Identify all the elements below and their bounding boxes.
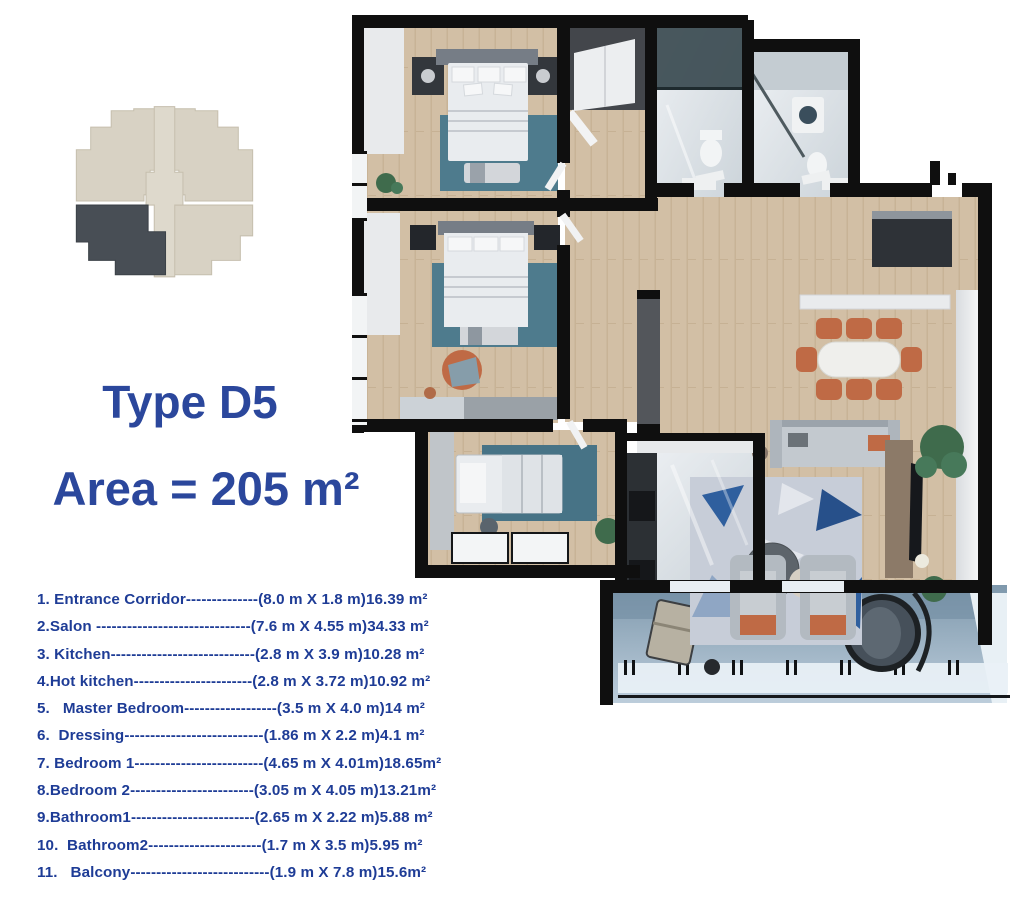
balcony-glass-door bbox=[670, 581, 730, 592]
room-list-item: 10. Bathroom2----------------------(1.7 … bbox=[37, 832, 457, 859]
toilet bbox=[700, 139, 722, 167]
entry-door-jamb bbox=[948, 173, 956, 185]
shower-tray bbox=[750, 48, 848, 90]
window bbox=[352, 151, 367, 221]
kitchen-counter bbox=[637, 441, 753, 453]
corridor-floor bbox=[565, 290, 637, 422]
bed-headboard bbox=[436, 49, 538, 65]
window bbox=[352, 293, 367, 425]
flower bbox=[915, 554, 929, 568]
keyplan-quadrant-bottom-right bbox=[171, 205, 253, 275]
room-list-item: 11. Balcony---------------------------(1… bbox=[37, 859, 457, 886]
dresser-marble bbox=[400, 397, 464, 420]
key-plan bbox=[62, 80, 267, 285]
wardrobe bbox=[430, 432, 454, 550]
dresser bbox=[464, 397, 558, 420]
pillow bbox=[460, 463, 486, 503]
page: { "header": { "type_label": "Type D5", "… bbox=[0, 0, 1024, 900]
console-cabinet bbox=[872, 211, 952, 267]
bed-headboard bbox=[438, 221, 534, 235]
plan-type-title: Type D5 bbox=[60, 378, 320, 426]
shower-glass bbox=[655, 20, 743, 90]
balcony-side-table bbox=[704, 659, 720, 675]
pillows bbox=[448, 237, 524, 251]
keyplan-highlighted-unit bbox=[76, 205, 165, 275]
tv-console bbox=[885, 440, 913, 578]
room-list-item: 6. Dressing---------------------------(1… bbox=[37, 722, 457, 749]
salon-partition-wall bbox=[637, 299, 660, 424]
room-list-item: 8.Bedroom 2------------------------(3.05… bbox=[37, 777, 457, 804]
entry-door-jamb bbox=[930, 161, 940, 185]
sofa bbox=[770, 420, 900, 468]
balcony-glass-door bbox=[782, 581, 844, 592]
oven bbox=[629, 491, 655, 521]
sideboard bbox=[800, 295, 950, 309]
room-list-item: 7. Bedroom 1-------------------------(4.… bbox=[37, 750, 457, 777]
floor-plan-rendering bbox=[352, 15, 1012, 710]
tv bbox=[909, 463, 923, 563]
room-entrance-corridor bbox=[872, 211, 952, 267]
plan-area-title: Area = 205 m² bbox=[18, 464, 394, 513]
room-list-item: 9.Bathroom1------------------------(2.65… bbox=[37, 804, 457, 831]
dining-table bbox=[818, 342, 900, 377]
armchair bbox=[800, 555, 856, 640]
